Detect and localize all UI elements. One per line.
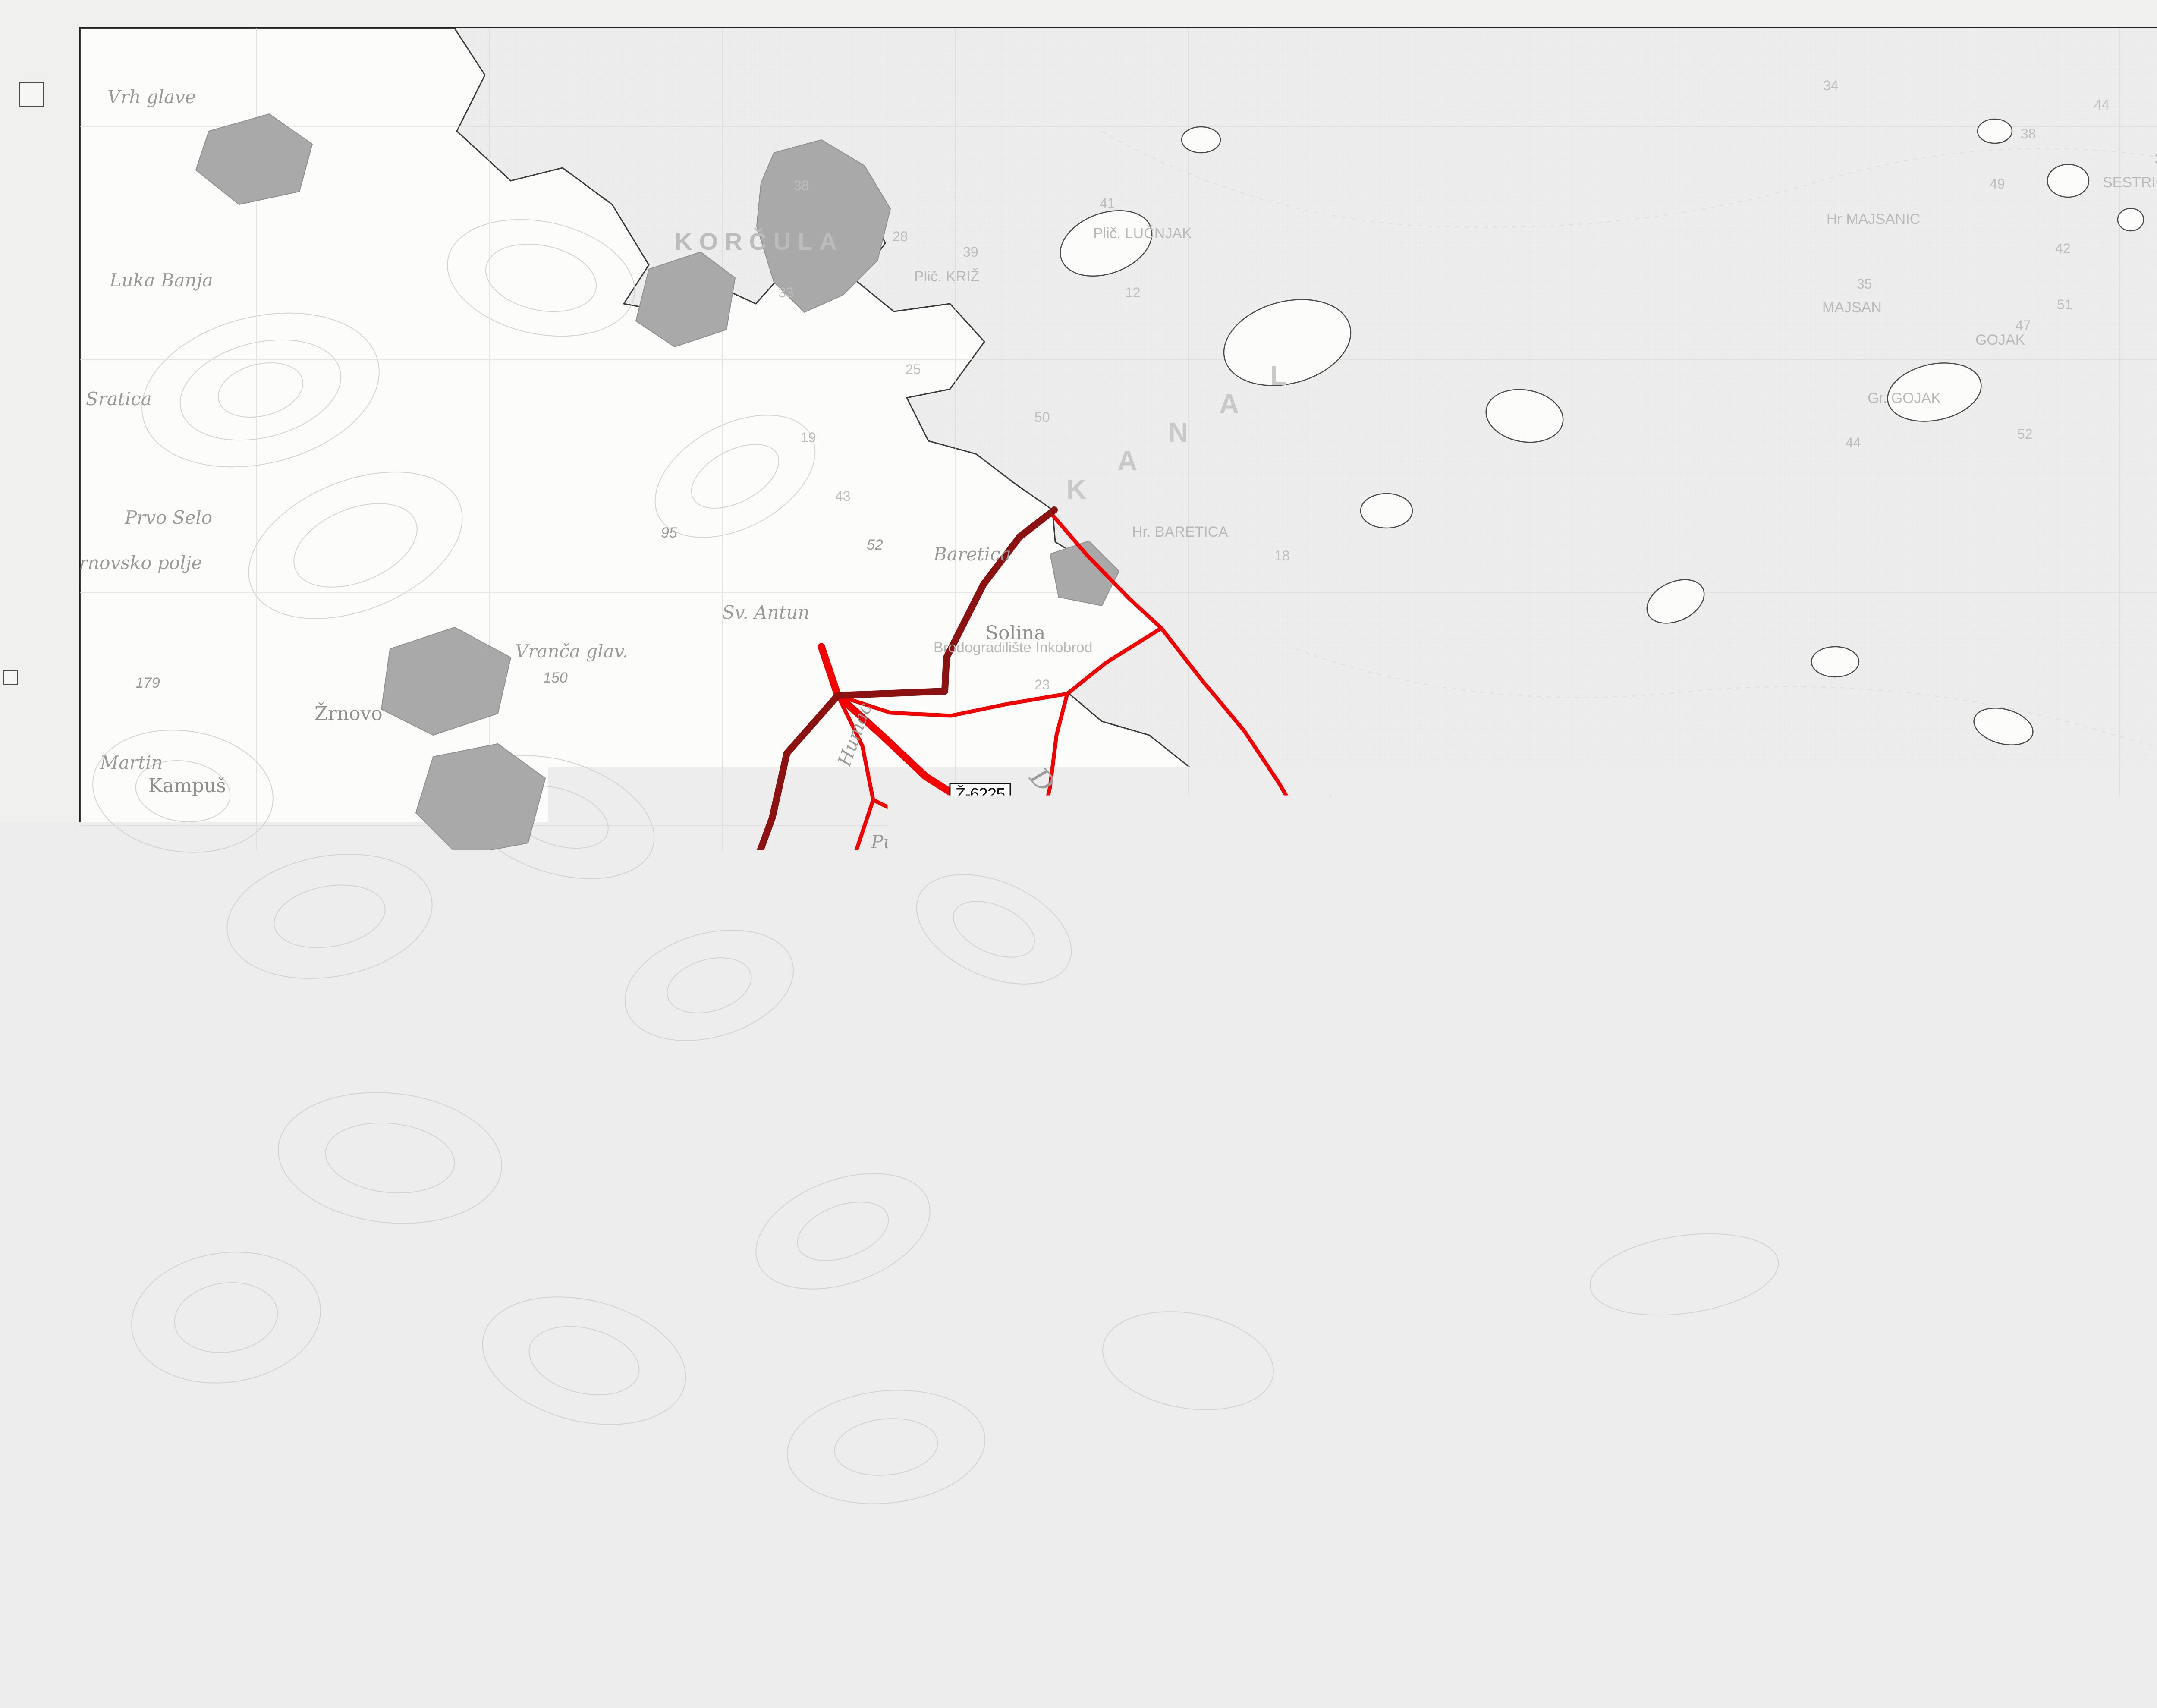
map-label: Prvo Selo	[124, 507, 212, 528]
svg-text:35: 35	[1857, 276, 1872, 292]
map-label: Garme	[949, 1491, 1010, 1513]
map-label: Zamaslinjak	[870, 1124, 982, 1145]
map-label: 121	[1037, 1214, 1062, 1230]
map-label: N	[1168, 417, 1188, 448]
map-label: KORČULA	[675, 228, 844, 255]
map-label: Luka Banja	[109, 270, 213, 291]
map-label: Okruglic	[478, 981, 558, 1003]
svg-text:18: 18	[1274, 548, 1290, 563]
map-label: Martin	[100, 752, 163, 773]
svg-text:49: 49	[1990, 176, 2005, 192]
map-label: 170	[575, 890, 600, 906]
map-label: Hr. BARETICA	[1132, 524, 1228, 540]
map-label: Klokolina	[547, 861, 634, 882]
map-label: A	[1117, 445, 1137, 476]
svg-text:19: 19	[801, 430, 816, 445]
svg-text:Ž-6225: Ž-6225	[956, 785, 1005, 803]
map-label: Kaludrt	[1185, 1003, 1255, 1024]
map-label: Plič. KRIŽ	[914, 268, 979, 285]
map-label: O. KORČULA	[1335, 1007, 1642, 1055]
map-label: Vrh glave	[107, 86, 196, 107]
svg-text:LN: LN	[1390, 1093, 1415, 1116]
map-label: K	[1066, 474, 1086, 505]
map-label: Gr. GOJAK	[1868, 390, 1941, 406]
map-label: Žrnovo	[314, 702, 383, 725]
map-label: L	[1270, 360, 1287, 391]
topographic-map: Ž-6225 Ž-6225 LN KORČULA O. KORČU	[80, 28, 2157, 1683]
svg-text:43: 43	[835, 488, 851, 504]
map-label: M. Glavica	[1387, 1118, 1461, 1136]
map-label: Hr MAJSANIC	[1827, 211, 1920, 227]
map-label: Bultica	[663, 1381, 729, 1402]
map-label: Ražnjić	[1986, 1259, 2057, 1281]
svg-text:34: 34	[1823, 78, 1839, 93]
map-label: Krmača	[1082, 1467, 1154, 1488]
map-label: Lumbarda	[1119, 1122, 1294, 1161]
svg-text:23: 23	[1034, 677, 1050, 692]
svg-text:44: 44	[1846, 435, 1861, 450]
svg-text:41: 41	[1100, 195, 1115, 211]
map-label: V. Glavica	[1565, 1142, 1776, 1169]
road-label-badge: Ž-6225	[950, 783, 1010, 804]
map-label: Oblo br	[566, 1161, 636, 1182]
map-label: V. straža	[1013, 1186, 1091, 1208]
svg-text:Ž-6225: Ž-6225	[1236, 1039, 1285, 1058]
map-label: Kampuš	[148, 775, 226, 797]
road-label-badge: Ž-6225	[1229, 1038, 1292, 1059]
svg-text:44: 44	[2094, 97, 2110, 113]
map-label: Kosovo	[1272, 1255, 1341, 1277]
map-label: Plič. LUČNJAK	[1093, 225, 1192, 242]
registration-mark	[3, 670, 18, 685]
map-label: Baretica	[933, 544, 1011, 565]
svg-text:15: 15	[1422, 1051, 1437, 1067]
map-label: 95	[661, 525, 677, 541]
svg-text:33: 33	[778, 285, 794, 300]
map-label: 150	[543, 670, 568, 686]
map-label: SESTRICA	[2103, 174, 2157, 191]
map-label: 52	[867, 537, 883, 553]
map-label: Knežić	[1648, 1067, 1715, 1092]
map-label: Postrana	[90, 1041, 175, 1063]
map-label: 179	[135, 675, 160, 691]
svg-text:25: 25	[906, 362, 921, 377]
svg-text:42: 42	[2055, 241, 2071, 256]
svg-text:52: 52	[2017, 426, 2033, 442]
map-label: A	[1219, 388, 1239, 419]
svg-text:47: 47	[2016, 318, 2031, 333]
map-label: Brodogradilište Inkobrod	[934, 639, 1093, 656]
map-label: Sv. Antun	[722, 602, 810, 623]
svg-text:39: 39	[963, 244, 978, 260]
svg-text:12: 12	[1125, 285, 1141, 300]
map-label: 88	[1412, 1408, 1428, 1425]
registration-mark	[19, 1645, 32, 1658]
map-label: Vranča glav.	[515, 641, 628, 662]
svg-text:36: 36	[2154, 151, 2157, 167]
map-label: MAJSAN	[1822, 299, 1882, 316]
map-sheet: Ž-6225 Ž-6225 LN KORČULA O. KORČU	[79, 27, 2157, 1683]
svg-text:50: 50	[1034, 409, 1050, 425]
map-label: Sratica	[86, 388, 152, 409]
map-label: 250	[262, 1039, 287, 1056]
map-label: Mindel	[877, 1199, 945, 1221]
map-label: Krpač	[1088, 869, 1144, 890]
map-label: GOJAK	[1975, 332, 2025, 348]
svg-text:38: 38	[2021, 126, 2036, 142]
scanned-plan-sheet: Ž-6225 Ž-6225 LN KORČULA O. KORČU	[0, 0, 2157, 1708]
map-label: Gornje blato	[761, 906, 1064, 938]
svg-text:28: 28	[893, 229, 908, 244]
map-label: 180	[578, 1189, 602, 1205]
map-label: Postrana	[1430, 1268, 1514, 1290]
svg-text:51: 51	[2057, 297, 2072, 312]
map-label: Pudarica	[871, 831, 953, 852]
map-label: U. Pržina	[1593, 1409, 1657, 1427]
svg-text:38: 38	[794, 178, 809, 193]
map-label: Žrnovsko polje	[80, 552, 202, 573]
map-label: 104	[912, 1153, 937, 1169]
map-label: Jakasova peć	[576, 1352, 699, 1373]
registration-mark	[19, 82, 44, 107]
